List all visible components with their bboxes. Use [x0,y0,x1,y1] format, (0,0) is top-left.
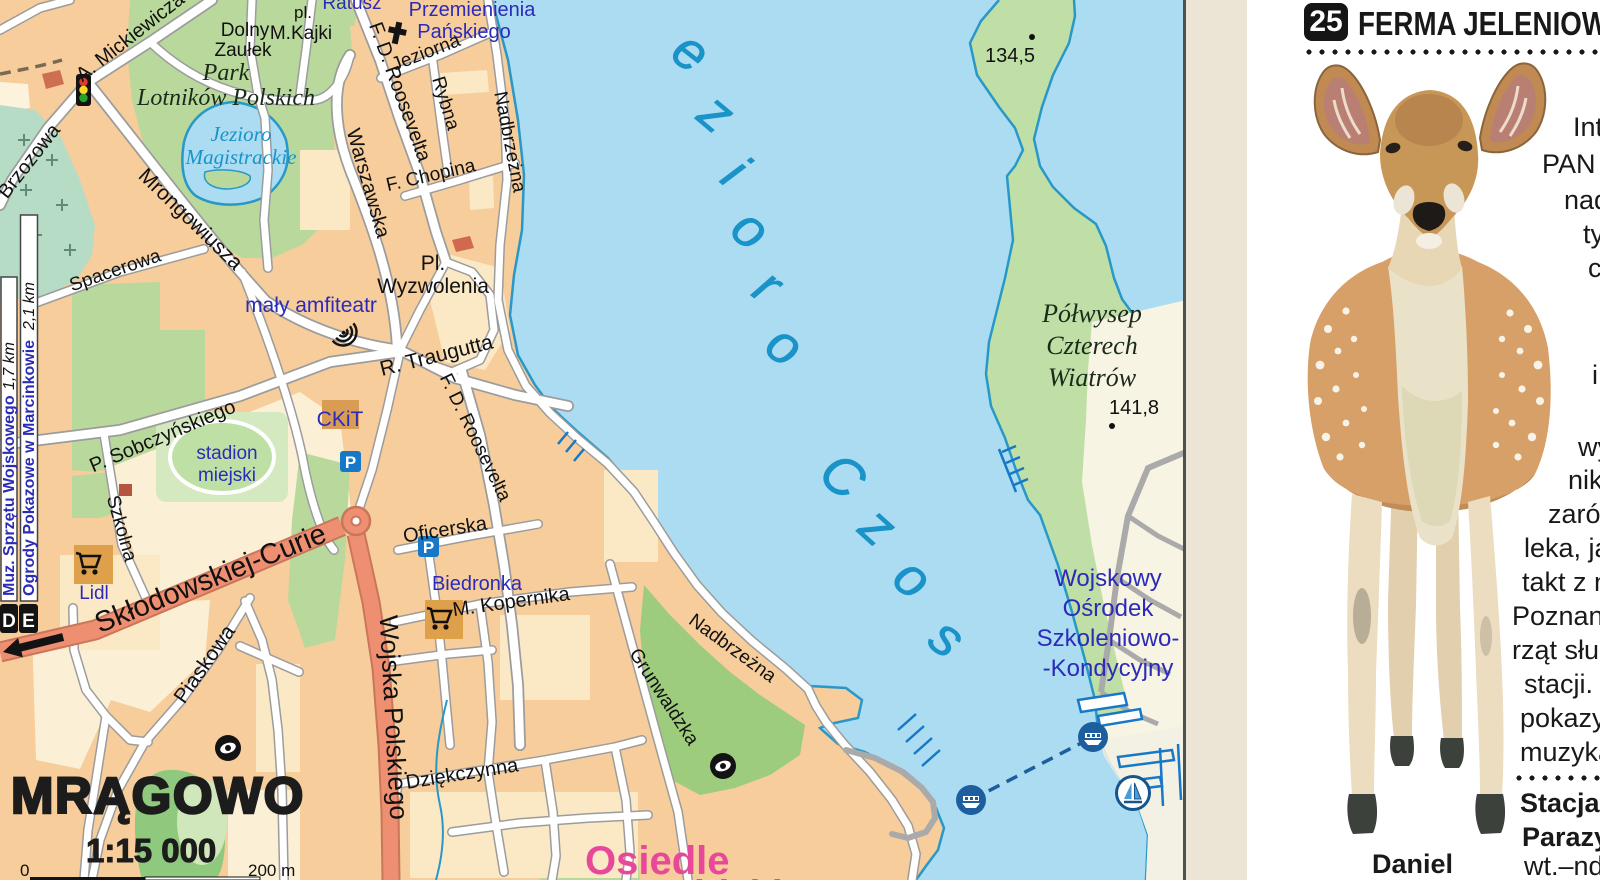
svg-text:Zaułek: Zaułek [214,40,272,61]
svg-text:Czterech: Czterech [1046,331,1137,360]
svg-text:Biedronka: Biedronka [432,573,523,595]
svg-text:2,1 km: 2,1 km [21,282,38,331]
svg-text:1:15 000: 1:15 000 [86,832,216,869]
svg-text:M.Kajki: M.Kajki [270,23,332,44]
svg-text:pl.: pl. [294,3,312,22]
svg-text:Wiatrów: Wiatrów [1048,363,1137,392]
svg-text:Grunwaldzkie: Grunwaldzkie [545,873,805,880]
svg-text:Lotników Polskich: Lotników Polskich [136,85,315,111]
svg-text:141,8: 141,8 [1109,397,1159,419]
svg-text:mały amfiteatr: mały amfiteatr [245,294,377,317]
svg-text:Dolny: Dolny [221,20,270,41]
svg-text:0: 0 [20,861,29,880]
svg-text:E: E [22,611,35,632]
svg-text:Przemienienia: Przemienienia [409,0,537,21]
svg-text:Ogrody Pokazowe w Marcinkowie: Ogrody Pokazowe w Marcinkowie [21,340,38,596]
svg-text:Lidl: Lidl [79,583,109,604]
svg-text:miejski: miejski [198,465,256,486]
svg-text:Park: Park [202,60,250,86]
svg-text:Wyzwolenia: Wyzwolenia [377,275,489,298]
svg-text:CKiT: CKiT [317,408,364,431]
svg-text:stadion: stadion [196,443,257,464]
svg-text:Pl.: Pl. [421,252,446,275]
svg-text:Muz. Sprzętu Wojskowego: Muz. Sprzętu Wojskowego [1,395,18,596]
svg-text:1,7 km: 1,7 km [1,342,18,390]
svg-text:Szkoleniowo-: Szkoleniowo- [1037,625,1180,652]
svg-text:-Kondycyjny: -Kondycyjny [1043,655,1174,682]
svg-text:134,5: 134,5 [985,45,1035,67]
svg-text:Wojskowy: Wojskowy [1054,565,1162,592]
svg-text:Ośrodek: Ośrodek [1063,595,1155,622]
svg-text:Magistrackie: Magistrackie [185,145,297,169]
svg-text:Ratusz: Ratusz [322,0,381,14]
svg-text:D: D [2,611,16,632]
svg-text:Półwysep: Półwysep [1041,299,1142,328]
svg-text:P: P [345,453,356,472]
svg-text:Jezioro: Jezioro [210,122,271,146]
svg-text:MRĄGOWO: MRĄGOWO [11,767,305,824]
svg-text:200 m: 200 m [248,861,295,880]
